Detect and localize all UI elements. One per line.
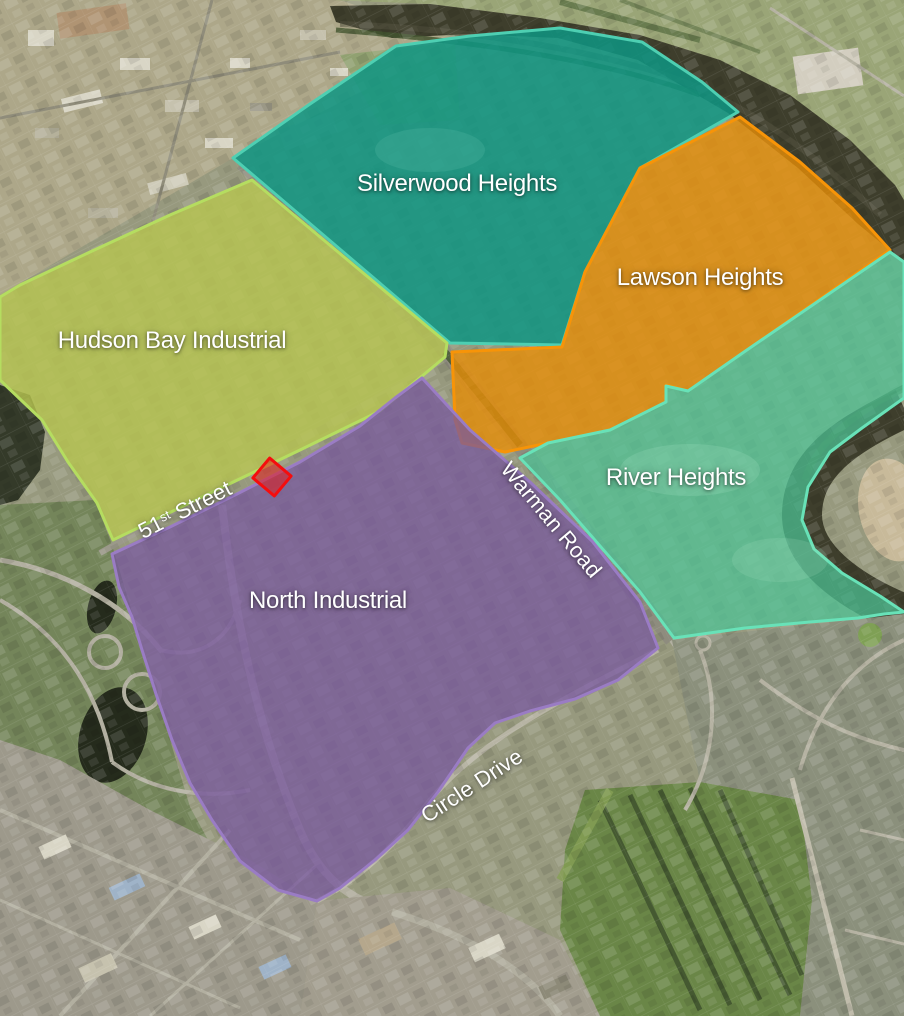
neighbourhood-map: Silverwood Heights Lawson Heights Hudson… [0, 0, 904, 1016]
satellite-basemap [0, 0, 904, 1016]
